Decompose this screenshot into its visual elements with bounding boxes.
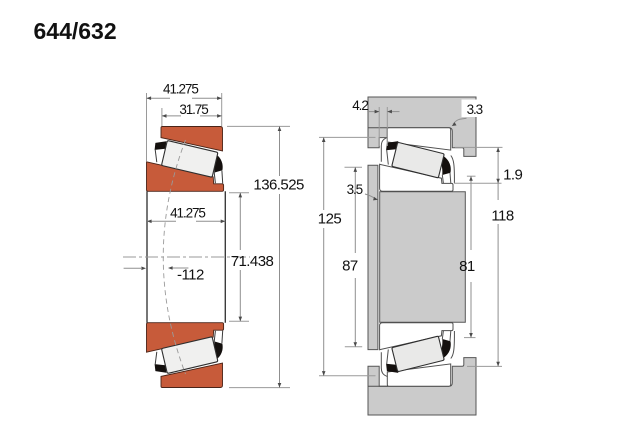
- svg-text:81: 81: [459, 258, 475, 275]
- svg-text:3.3: 3.3: [467, 102, 483, 117]
- svg-text:71.438: 71.438: [231, 253, 274, 270]
- svg-text:125: 125: [318, 210, 342, 227]
- svg-text:31.75: 31.75: [179, 102, 208, 117]
- svg-text:644/632: 644/632: [34, 18, 117, 44]
- svg-text:3.5: 3.5: [347, 182, 363, 197]
- svg-text:118: 118: [491, 207, 513, 224]
- svg-text:4.2: 4.2: [352, 98, 368, 113]
- svg-text:1.9: 1.9: [503, 167, 522, 184]
- svg-text:-112: -112: [177, 267, 204, 284]
- svg-text:136.525: 136.525: [253, 176, 304, 193]
- svg-text:87: 87: [342, 258, 358, 275]
- svg-text:41.275: 41.275: [170, 205, 205, 220]
- svg-text:41.275: 41.275: [163, 81, 198, 96]
